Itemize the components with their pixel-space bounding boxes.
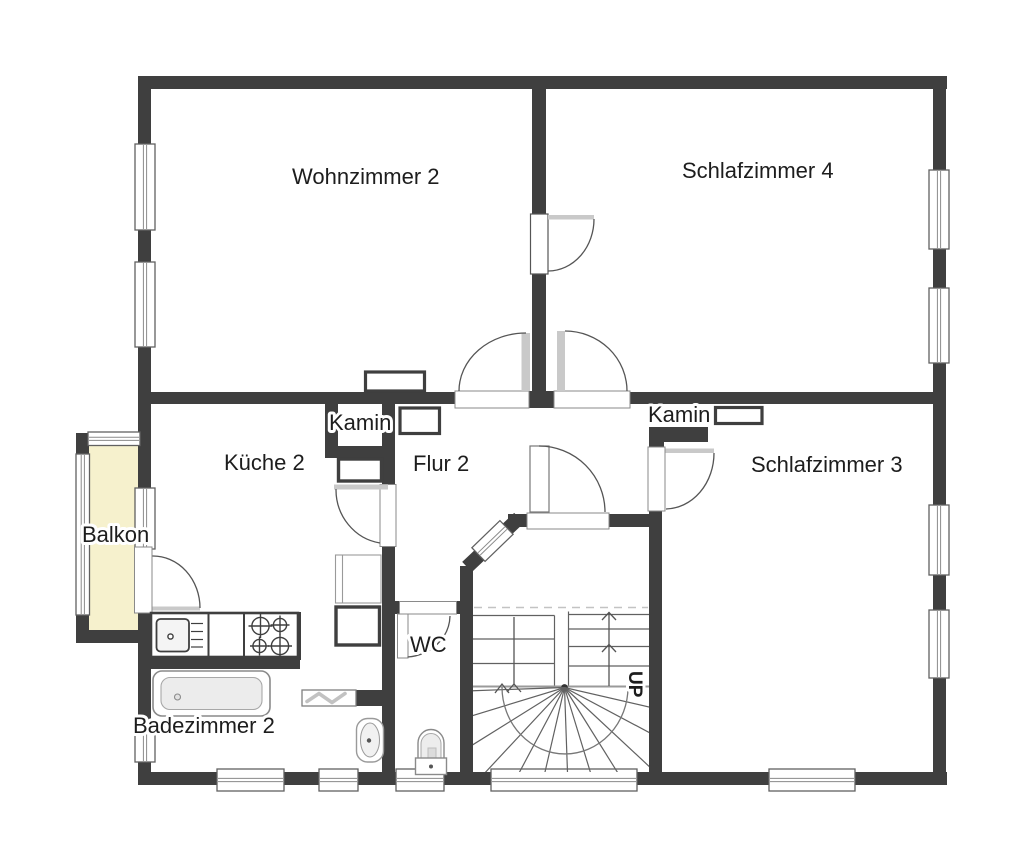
svg-text:UP: UP xyxy=(624,671,645,698)
svg-text:Schlafzimmer 3: Schlafzimmer 3 xyxy=(751,452,903,477)
svg-text:Kamin: Kamin xyxy=(329,410,391,435)
svg-text:Küche 2: Küche 2 xyxy=(224,450,305,475)
svg-text:Badezimmer 2: Badezimmer 2 xyxy=(133,713,275,738)
svg-text:Wohnzimmer 2: Wohnzimmer 2 xyxy=(292,164,440,189)
svg-text:Flur 2: Flur 2 xyxy=(413,451,469,476)
svg-text:Schlafzimmer 4: Schlafzimmer 4 xyxy=(682,158,834,183)
svg-text:Balkon: Balkon xyxy=(82,522,149,547)
svg-text:Kamin: Kamin xyxy=(648,402,710,427)
svg-text:WC: WC xyxy=(410,632,447,657)
